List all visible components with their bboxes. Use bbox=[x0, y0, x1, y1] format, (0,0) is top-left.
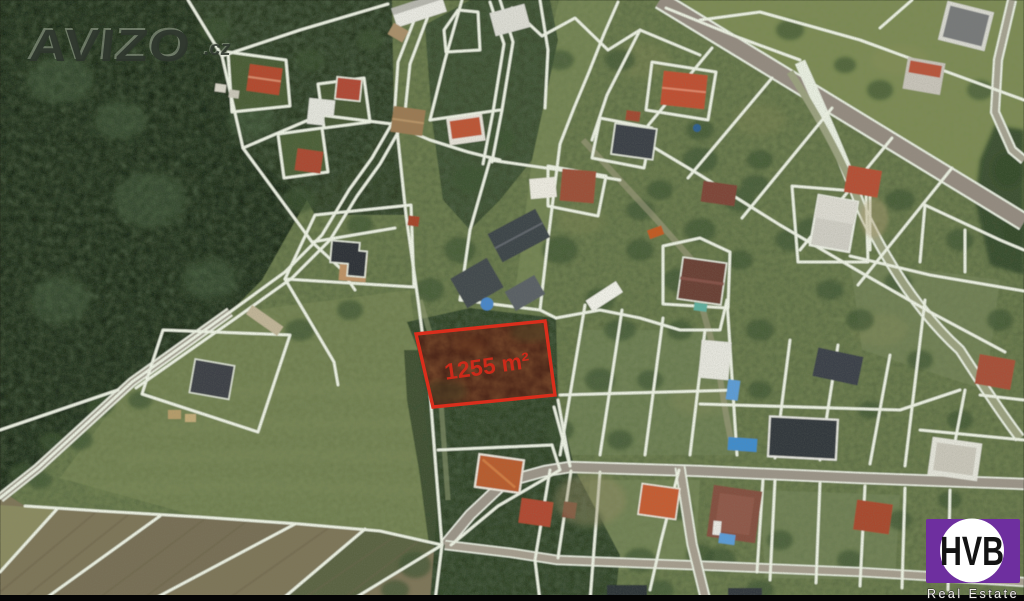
svg-text:AVIZO: AVIZO bbox=[27, 21, 194, 71]
svg-text:HVB: HVB bbox=[940, 527, 1004, 574]
svg-text:Real Estate: Real Estate bbox=[927, 587, 1019, 601]
svg-text:.cz: .cz bbox=[204, 38, 231, 60]
